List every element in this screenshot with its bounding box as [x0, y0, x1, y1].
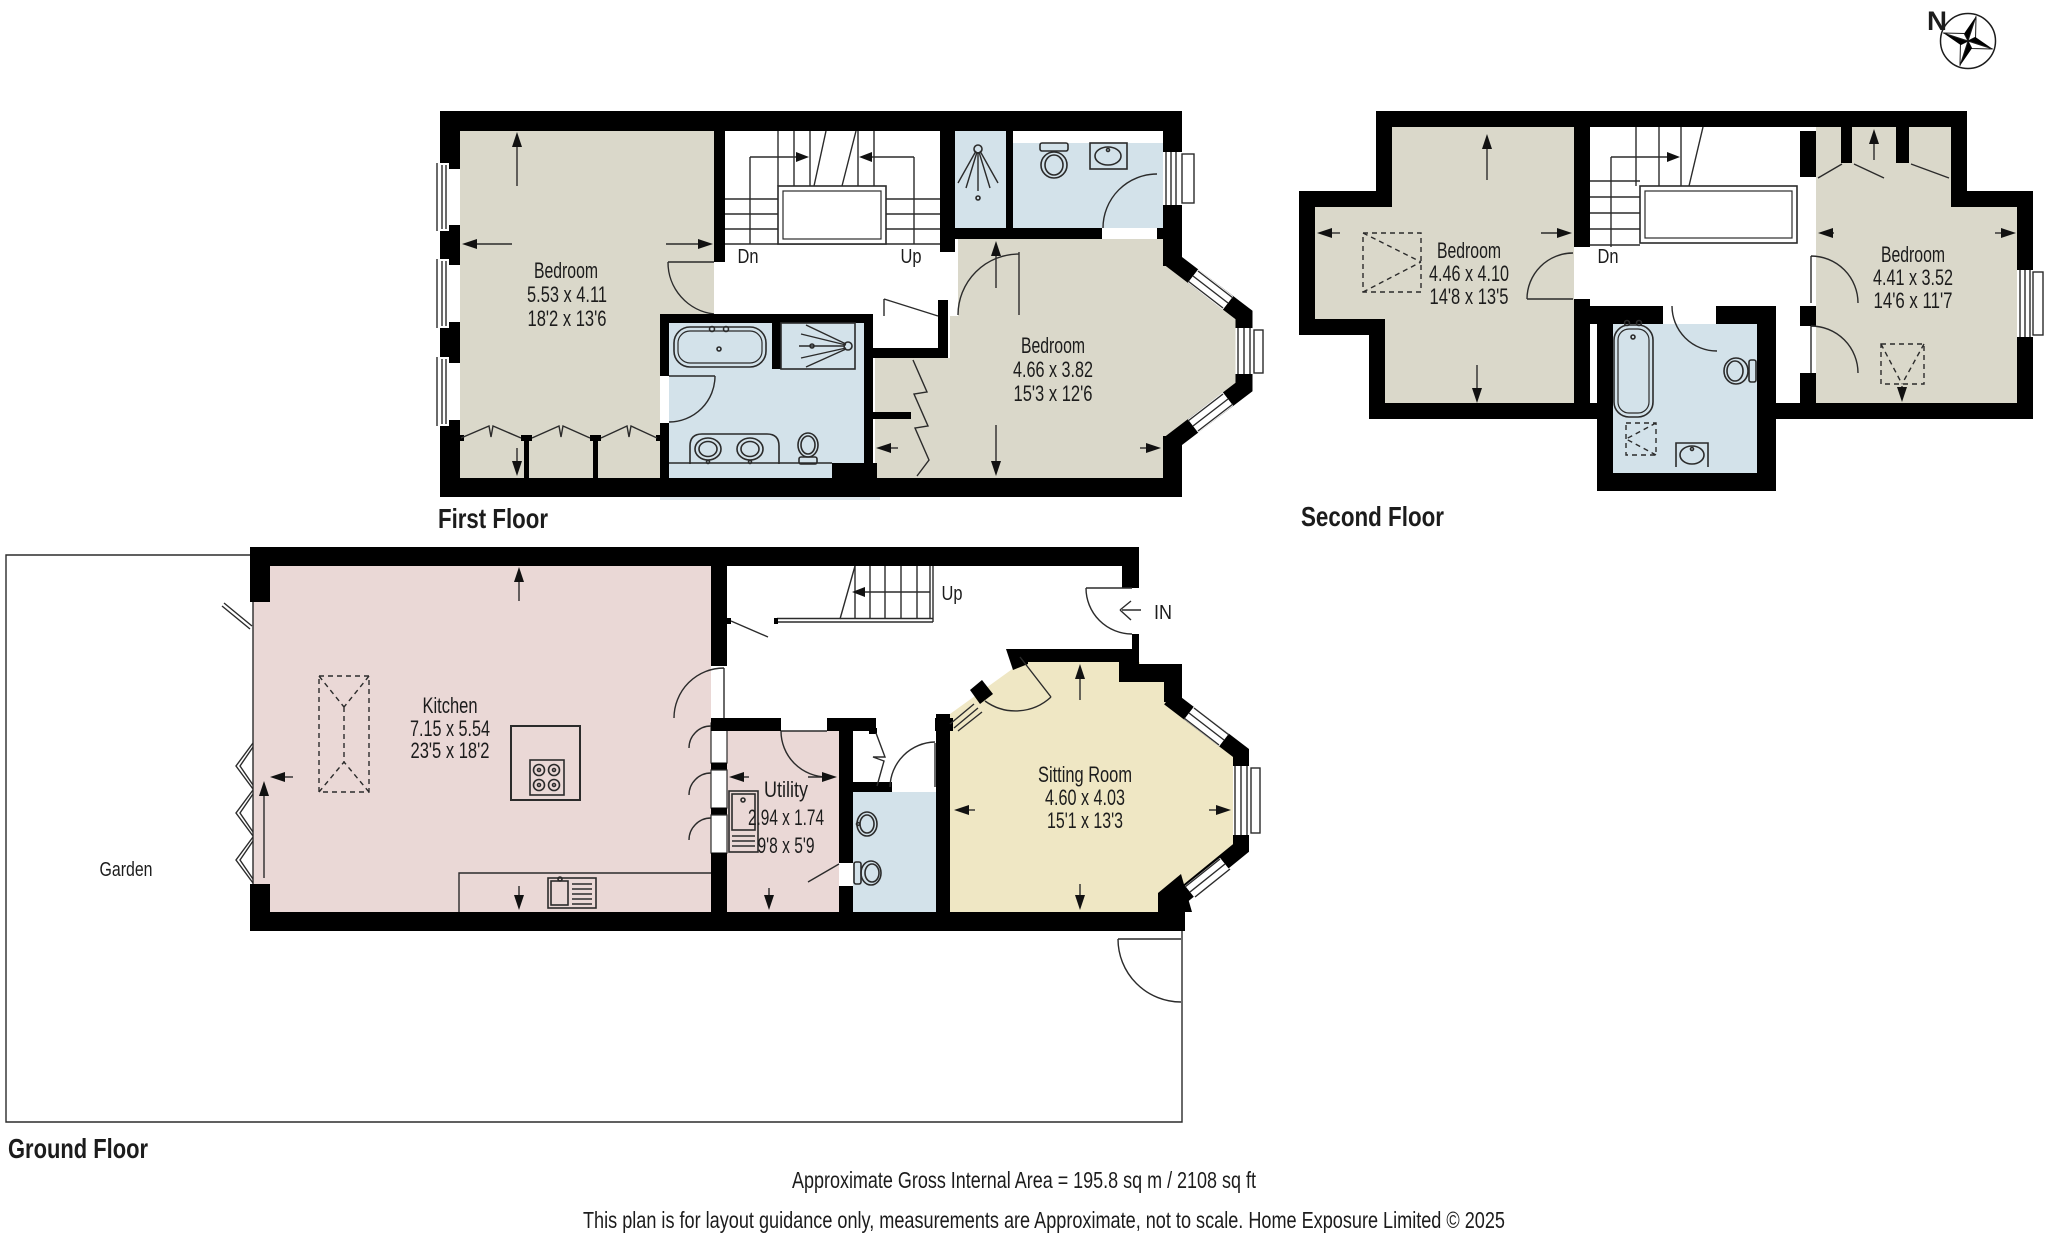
svg-text:4.66 x 3.82: 4.66 x 3.82	[1013, 357, 1093, 382]
svg-text:Bedroom: Bedroom	[1021, 333, 1085, 358]
svg-text:This plan is for layout guidan: This plan is for layout guidance only, m…	[583, 1207, 1505, 1233]
svg-text:18'2 x 13'6: 18'2 x 13'6	[528, 306, 607, 331]
svg-text:Ground Floor: Ground Floor	[8, 1133, 148, 1164]
svg-text:4.46 x 4.10: 4.46 x 4.10	[1429, 261, 1509, 286]
svg-text:IN: IN	[1154, 602, 1172, 624]
svg-text:5.53 x 4.11: 5.53 x 4.11	[527, 282, 607, 307]
svg-text:15'1 x 13'3: 15'1 x 13'3	[1047, 808, 1123, 833]
svg-text:2.94 x 1.74: 2.94 x 1.74	[748, 805, 824, 830]
svg-text:Dn: Dn	[1598, 246, 1619, 268]
svg-text:Bedroom: Bedroom	[1881, 242, 1945, 267]
svg-text:15'3 x 12'6: 15'3 x 12'6	[1014, 381, 1093, 406]
svg-text:Utility: Utility	[764, 777, 808, 802]
svg-text:Garden: Garden	[100, 859, 153, 881]
svg-text:N: N	[1927, 6, 1947, 36]
svg-text:Approximate Gross Internal Are: Approximate Gross Internal Area = 195.8 …	[792, 1167, 1256, 1193]
svg-text:9'8 x 5'9: 9'8 x 5'9	[758, 833, 815, 858]
svg-text:14'6 x 11'7: 14'6 x 11'7	[1874, 288, 1953, 313]
svg-text:Sitting Room: Sitting Room	[1038, 762, 1132, 787]
svg-text:Bedroom: Bedroom	[534, 258, 598, 283]
svg-text:Up: Up	[901, 246, 922, 268]
svg-text:23'5 x 18'2: 23'5 x 18'2	[411, 738, 490, 763]
svg-text:4.41 x 3.52: 4.41 x 3.52	[1873, 265, 1953, 290]
svg-text:Dn: Dn	[738, 246, 759, 268]
svg-text:First Floor: First Floor	[438, 503, 548, 534]
svg-text:4.60 x 4.03: 4.60 x 4.03	[1045, 785, 1125, 810]
svg-text:Up: Up	[942, 583, 963, 605]
svg-text:Kitchen: Kitchen	[423, 693, 478, 718]
svg-text:Second Floor: Second Floor	[1301, 501, 1444, 532]
svg-text:14'8 x 13'5: 14'8 x 13'5	[1430, 284, 1509, 309]
svg-text:Bedroom: Bedroom	[1437, 238, 1501, 263]
